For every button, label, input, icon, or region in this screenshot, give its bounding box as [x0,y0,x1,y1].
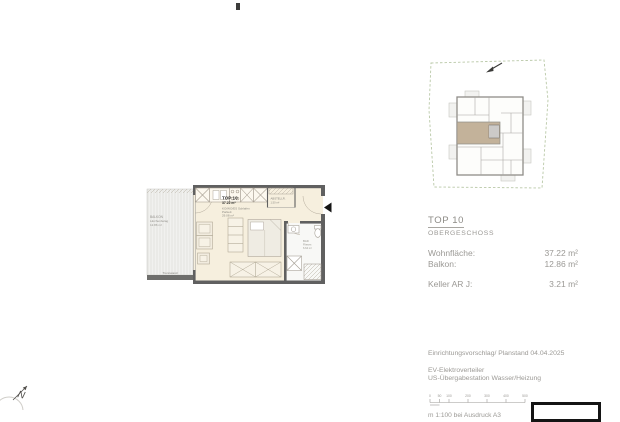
side-table [198,253,210,264]
area-table: Wohnfläche: 37.22 m² Balkon: 12.86 m² Ke… [428,248,578,290]
registration-mark [236,3,240,10]
plan-note: Einrichtungsvorschlag/ Planstand 04.04.2… [428,350,613,359]
shelf [228,218,243,252]
svg-text:29.08 m²: 29.08 m² [222,214,234,218]
shower [304,264,321,280]
svg-text:50: 50 [438,394,442,398]
washbasin [288,226,299,234]
svg-text:500: 500 [522,394,528,398]
balcony-area: Trennwand BALKON Lärchenbelag 12.86 m² [147,189,193,280]
svg-text:BAD: BAD [303,239,309,243]
storage-area: 1.50 m² [271,201,280,205]
svg-text:0: 0 [429,394,431,398]
north-arrow-icon [486,63,502,73]
row-value: 37.22 m² [544,248,578,259]
scale-ruler: 0 50 100 200 300 400 500 [428,392,533,407]
svg-text:6.64 m²: 6.64 m² [303,246,312,250]
unit-number: TOP 10 [222,196,238,201]
sofa [197,222,213,249]
legend-us: US-Übergabestation Wasser/Heizung [428,375,613,384]
svg-text:100: 100 [446,394,452,398]
unit-info-panel: TOP 10 OBERGESCHOSS Wohnfläche: 37.22 m²… [428,210,578,290]
row-label: Keller AR J: [428,279,472,290]
balcony-partition-wall [147,275,193,280]
wc [315,229,321,238]
table-row: Keller AR J: 3.21 m² [428,279,578,290]
floor-plan-drawing: Trennwand BALKON Lärchenbelag 12.86 m² [138,182,338,298]
stairwell [489,125,499,138]
row-value: 3.21 m² [549,279,578,290]
north-letter: N [16,389,26,402]
svg-text:300: 300 [484,394,490,398]
building-outline [449,91,531,181]
unit-area: 37.22 m² [222,201,236,205]
table-row: Balkon: 12.86 m² [428,259,578,270]
logo-box [531,402,601,422]
unit-title: TOP 10 [428,215,464,228]
compass: N [0,378,45,410]
wardrobe [230,262,281,277]
svg-text:Fliesen: Fliesen [303,243,312,247]
bed [248,220,281,257]
site-overview-plan [423,55,558,195]
partition-label: Trennwand [163,271,178,275]
row-label: Wohnfläche: [428,248,475,259]
svg-text:12.86 m²: 12.86 m² [150,223,162,227]
storage-label: ABSTELLR. [271,197,286,201]
unit-floor-label: OBERGESCHOSS [428,230,578,237]
row-label: Balkon: [428,259,456,270]
svg-text:200: 200 [465,394,471,398]
table-row: Wohnfläche: 37.22 m² [428,248,578,259]
entrance-arrow-icon [324,203,332,213]
row-value: 12.86 m² [544,259,578,270]
legend-ev: EV-Elektroverteiler [428,367,613,376]
svg-text:400: 400 [503,394,509,398]
